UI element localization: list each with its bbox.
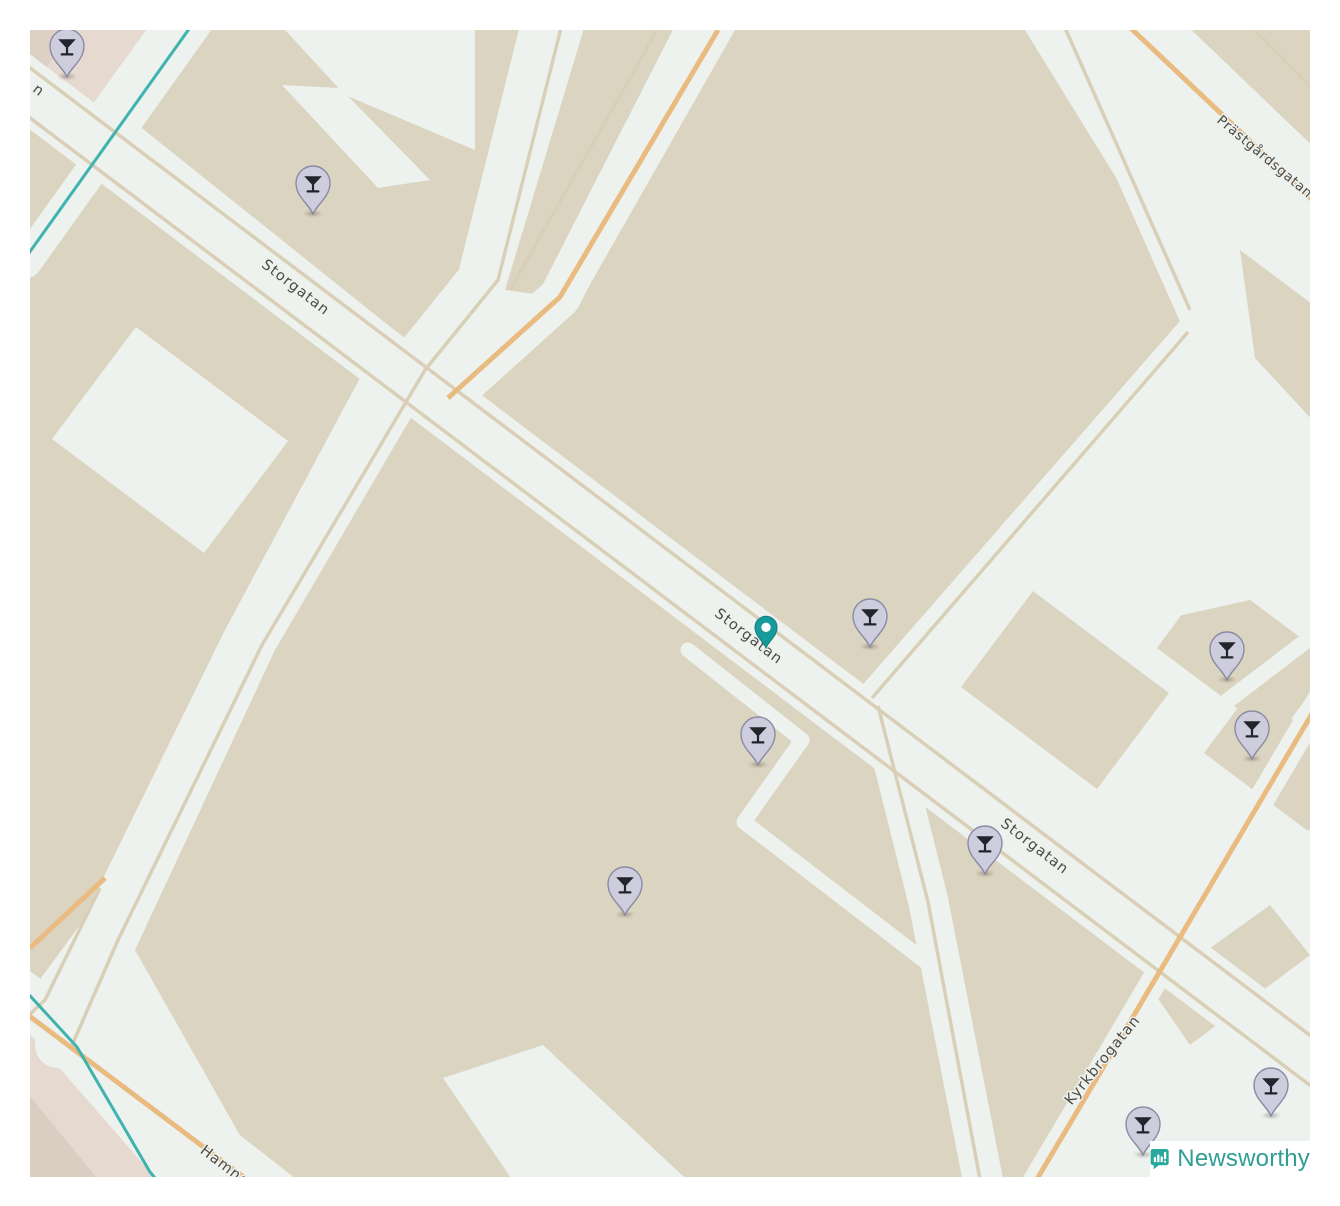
cocktail-glass-pin-icon [739,715,777,766]
map-margin-right [1310,0,1340,1206]
cocktail-glass-pin-icon [606,865,644,916]
map-screenshot: Storgatan Storgatan Storgatan Prästgårds… [0,0,1340,1206]
newsworthy-logo-icon [1150,1142,1169,1176]
map-pin-selected[interactable] [753,615,779,649]
map-margin-top [0,0,1340,30]
map-pin-venue[interactable] [48,27,86,78]
map-pin-venue[interactable] [739,715,777,766]
map-pin-venue[interactable] [851,597,889,648]
cocktail-glass-pin-icon [48,27,86,78]
selected-pin-icon [753,615,779,649]
map-margin-left [0,0,30,1206]
map-pin-venue[interactable] [294,164,332,215]
cocktail-glass-pin-icon [1208,630,1246,681]
map-pin-venue[interactable] [1208,630,1246,681]
cocktail-glass-pin-icon [1252,1066,1290,1117]
map-canvas[interactable]: Storgatan Storgatan Storgatan Prästgårds… [0,0,1340,1206]
map-pin-venue[interactable] [966,824,1004,875]
cocktail-glass-pin-icon [294,164,332,215]
map-pin-venue[interactable] [1252,1066,1290,1117]
map-margin-bottom [0,1177,1340,1206]
map-pin-venue[interactable] [606,865,644,916]
cocktail-glass-pin-icon [851,597,889,648]
cocktail-glass-pin-icon [966,824,1004,875]
map-pin-venue[interactable] [1233,709,1271,760]
brand-text: Newsworthy [1177,1145,1310,1173]
cocktail-glass-pin-icon [1233,709,1271,760]
attribution-badge: Newsworthy [1150,1141,1310,1177]
